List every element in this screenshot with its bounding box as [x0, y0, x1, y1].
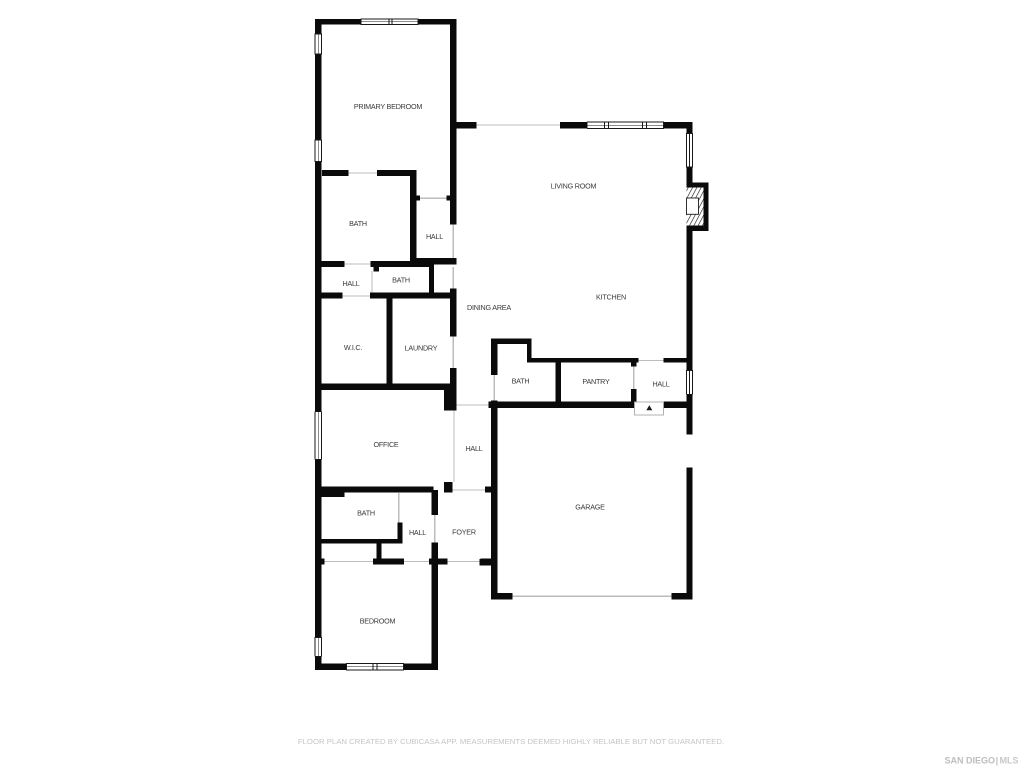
svg-text:BATH: BATH: [349, 219, 367, 228]
svg-text:BATH: BATH: [512, 377, 530, 386]
svg-text:MLS: MLS: [1000, 756, 1019, 766]
svg-text:BEDROOM: BEDROOM: [360, 617, 396, 626]
svg-text:PRIMARY BEDROOM: PRIMARY BEDROOM: [354, 102, 423, 111]
svg-text:KITCHEN: KITCHEN: [596, 293, 626, 302]
svg-text:FLOOR PLAN CREATED BY CUBICASA: FLOOR PLAN CREATED BY CUBICASA APP. MEAS…: [298, 737, 724, 746]
svg-text:HALL: HALL: [426, 232, 443, 241]
svg-text:HALL: HALL: [342, 279, 359, 288]
svg-text:BATH: BATH: [357, 509, 375, 518]
svg-text:OFFICE: OFFICE: [373, 440, 398, 449]
svg-text:LAUNDRY: LAUNDRY: [405, 343, 438, 352]
svg-text:LIVING ROOM: LIVING ROOM: [551, 182, 597, 191]
svg-text:HALL: HALL: [409, 528, 426, 537]
svg-text:HALL: HALL: [652, 380, 669, 389]
svg-text:|: |: [996, 756, 998, 766]
svg-text:PANTRY: PANTRY: [582, 377, 610, 386]
svg-text:SAN DIEGO: SAN DIEGO: [945, 756, 996, 766]
svg-text:BATH: BATH: [392, 276, 410, 285]
svg-text:DINING AREA: DINING AREA: [467, 303, 511, 312]
svg-text:HALL: HALL: [465, 444, 482, 453]
svg-text:GARAGE: GARAGE: [575, 503, 605, 512]
svg-text:W.I.C.: W.I.C.: [344, 343, 362, 352]
svg-text:FOYER: FOYER: [452, 528, 476, 537]
